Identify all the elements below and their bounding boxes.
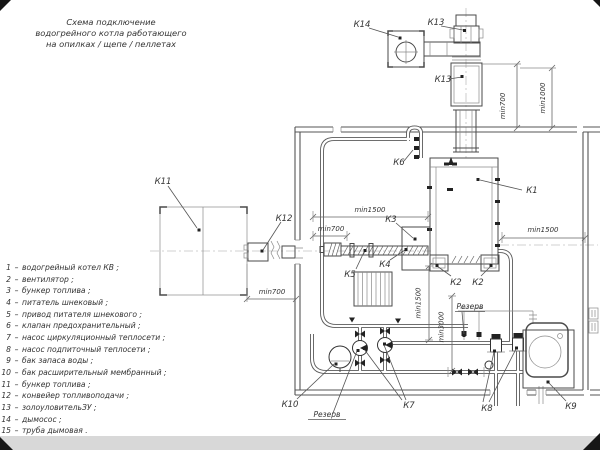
k14-smoke-exhauster xyxy=(388,31,424,67)
label-k5: К5 xyxy=(344,270,355,280)
leader-lines xyxy=(168,26,566,420)
label-k13-lower: К13 xyxy=(435,75,452,85)
label-k10: К10 xyxy=(282,400,299,410)
dim-min700-left: min700 xyxy=(318,225,345,233)
floor-grate xyxy=(354,272,392,306)
label-k8: К8 xyxy=(481,404,493,414)
dim-min1500-vertical: min1500 xyxy=(415,287,423,319)
label-k14: К14 xyxy=(354,20,371,30)
label-k2-left: К2 xyxy=(450,278,461,288)
centerlines xyxy=(150,8,598,251)
label-k7: К7 xyxy=(403,401,415,411)
label-k2-right: К2 xyxy=(472,278,483,288)
label-k6: К6 xyxy=(393,158,405,168)
flue-duct xyxy=(424,42,480,56)
label-k3: К3 xyxy=(385,215,396,225)
label-reserve-bottom: Резерв xyxy=(314,410,341,419)
component-labels: К11 К12 К14 К13 К13 К6 К1 К3 К4 К5 К2 К2… xyxy=(155,18,577,419)
label-k9: К9 xyxy=(565,402,576,412)
label-k13-top: К13 xyxy=(428,18,445,28)
dim-min3000-vertical: min3000 xyxy=(438,311,446,343)
label-reserve-right: Резерв xyxy=(457,302,484,311)
dim-min700-vertical: min700 xyxy=(499,92,507,119)
k6-safety-valve xyxy=(414,137,419,159)
dim-min1500-left: min1500 xyxy=(354,206,386,214)
k4-screw-feeder xyxy=(341,244,428,258)
label-k12: К12 xyxy=(276,214,293,224)
drawing-sheet: Схема подключение водогрейного котла раб… xyxy=(0,0,600,450)
label-k1: К1 xyxy=(526,186,537,196)
boiler-connection-diagram: min1500 min700 min700 min1500 min700 min… xyxy=(0,0,600,450)
dim-min700-conveyor: min700 xyxy=(259,288,286,296)
k10-expansion-tank xyxy=(329,346,351,372)
dim-min1500-right: min1500 xyxy=(527,226,559,234)
dim-min1000-vertical: min1000 xyxy=(539,82,547,114)
k1-boiler xyxy=(427,157,500,264)
k9-storage-tank xyxy=(523,323,574,388)
label-k11: К11 xyxy=(155,177,172,187)
label-k4: К4 xyxy=(379,260,390,270)
wall-cabinets xyxy=(589,308,598,333)
